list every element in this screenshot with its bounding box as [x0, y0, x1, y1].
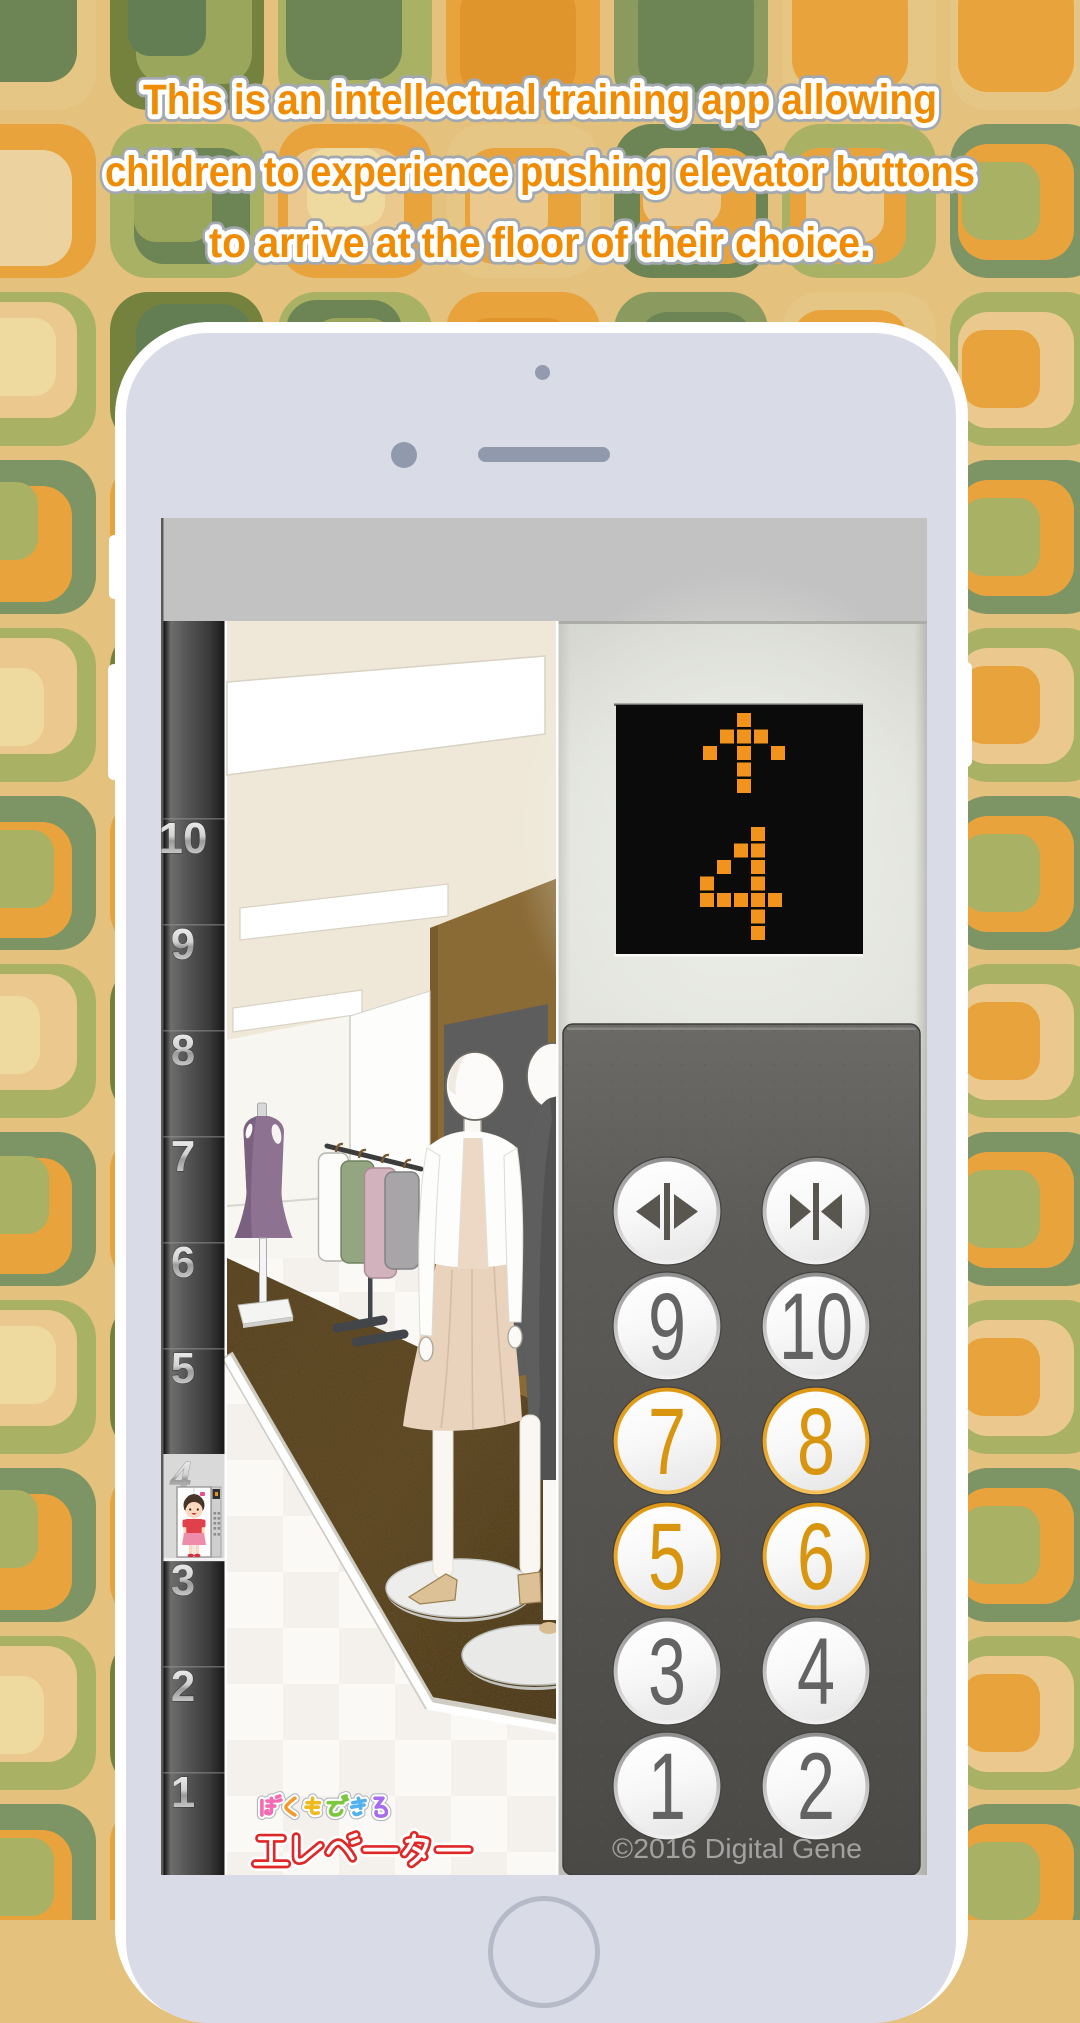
svg-text:©2016 Digital Gene: ©2016 Digital Gene: [612, 1833, 862, 1864]
svg-text:children to experience pushing: children to experience pushing elevator …: [105, 148, 975, 196]
svg-text:2: 2: [171, 1662, 195, 1711]
svg-text:3: 3: [171, 1556, 195, 1605]
svg-text:6: 6: [171, 1238, 195, 1287]
svg-text:to arrive at the floor of thei: to arrive at the floor of their choice.: [209, 219, 871, 267]
svg-text:3: 3: [648, 1619, 686, 1725]
svg-text:5: 5: [171, 1344, 195, 1393]
svg-text:8: 8: [797, 1389, 835, 1495]
svg-text:1: 1: [648, 1734, 686, 1840]
svg-text:1: 1: [171, 1768, 195, 1817]
svg-text:7: 7: [171, 1132, 195, 1181]
svg-text:2: 2: [797, 1734, 835, 1840]
svg-text:9: 9: [171, 920, 195, 969]
svg-text:10: 10: [161, 814, 207, 863]
svg-text:5: 5: [648, 1504, 686, 1610]
svg-text:6: 6: [797, 1504, 835, 1610]
svg-text:4: 4: [797, 1619, 835, 1725]
svg-text:10: 10: [779, 1274, 853, 1380]
svg-text:This is an intellectual traini: This is an intellectual training app all…: [143, 76, 937, 124]
svg-text:7: 7: [648, 1389, 686, 1495]
svg-text:8: 8: [171, 1026, 195, 1075]
svg-text:9: 9: [648, 1274, 686, 1380]
